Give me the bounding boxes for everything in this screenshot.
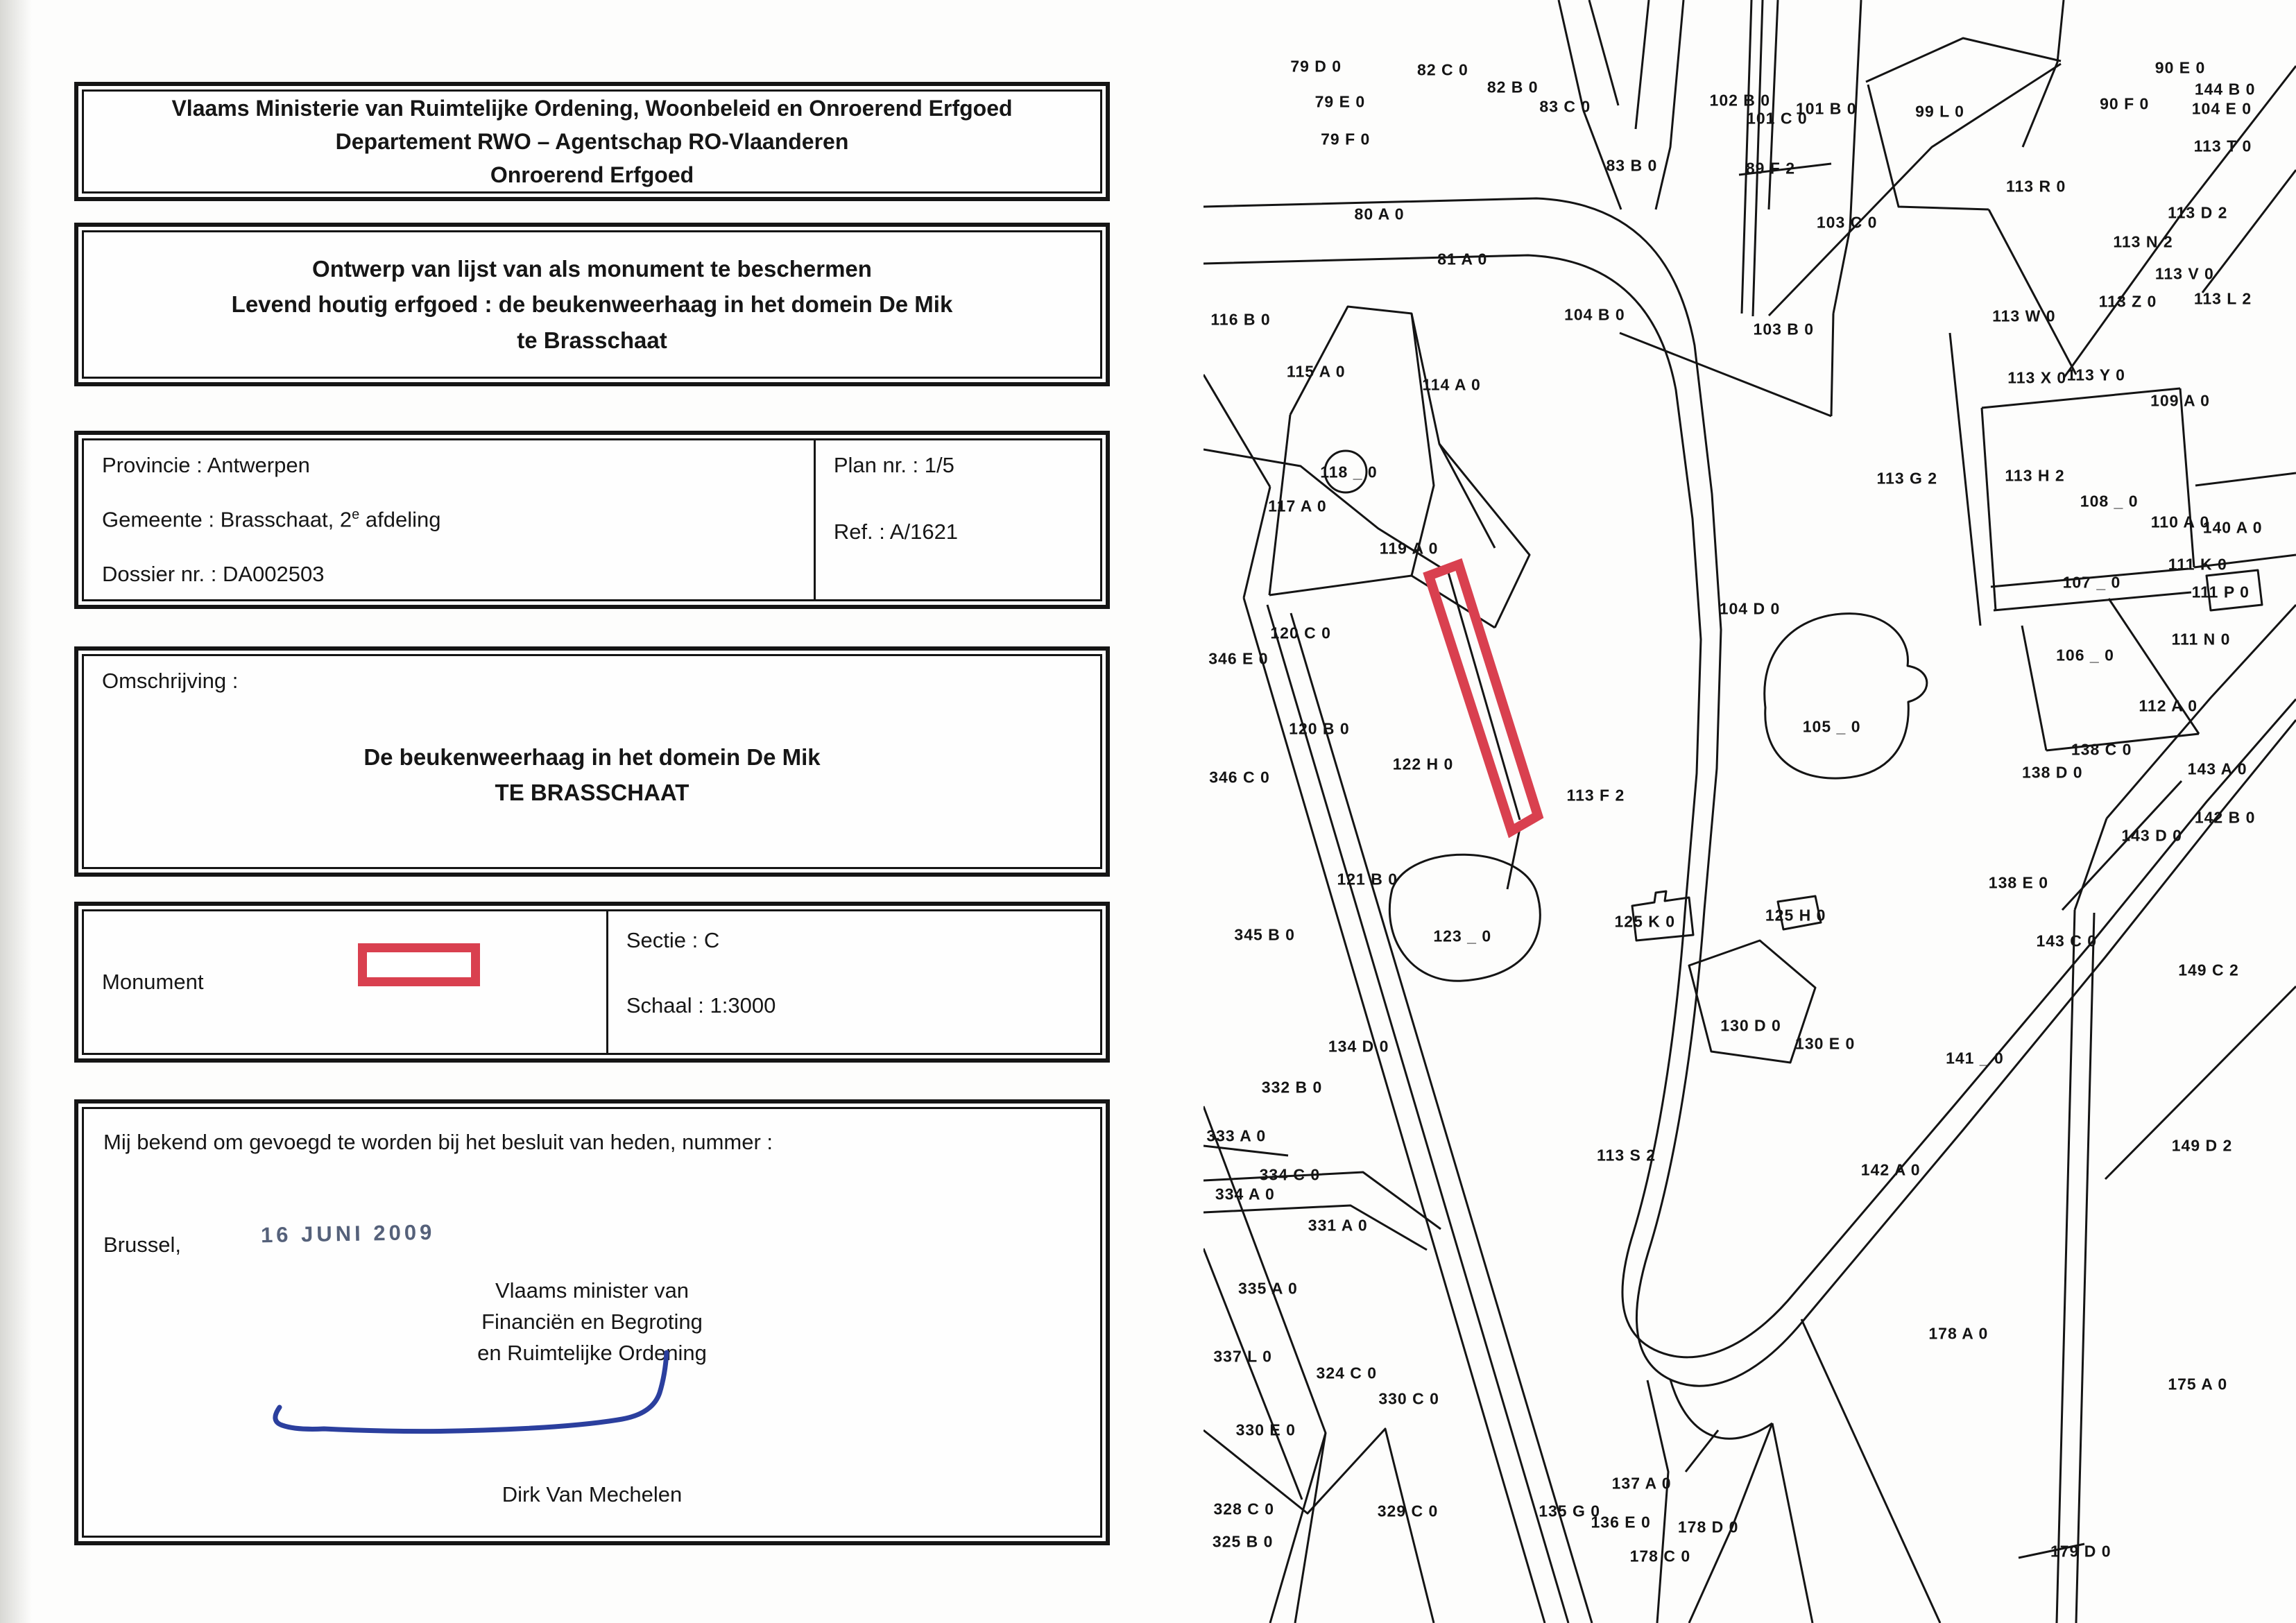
parcel-label: 99 L 0 xyxy=(1915,103,1964,121)
parcel-label: 113 N 2 xyxy=(2113,232,2173,251)
parcel-label: 113 W 0 xyxy=(1992,307,2055,326)
title-line-3: te Brasschaat xyxy=(517,323,667,358)
title-line-1: Ontwerp van lijst van als monument te be… xyxy=(312,251,872,286)
parcel-label: 334 A 0 xyxy=(1215,1185,1275,1204)
parcel-label: 111 P 0 xyxy=(2192,583,2250,602)
parcel-label: 141 _ 0 xyxy=(1946,1049,2004,1067)
parcel-label: 333 A 0 xyxy=(1206,1127,1266,1146)
parcel-label: 102 B 0 xyxy=(1710,92,1771,110)
ministry-line-2: Departement RWO – Agentschap RO-Vlaander… xyxy=(336,125,849,158)
parcel-label: 143 D 0 xyxy=(2121,827,2182,845)
scanned-document-page: Vlaams Ministerie van Ruimtelijke Ordeni… xyxy=(0,0,2296,1623)
parcel-label: 332 B 0 xyxy=(1262,1078,1323,1097)
parcel-label: 80 A 0 xyxy=(1355,205,1405,223)
monument-label: Monument xyxy=(102,970,203,995)
parcel-label: 125 H 0 xyxy=(1765,906,1826,925)
parcel-label: 328 C 0 xyxy=(1213,1500,1274,1519)
parcel-label: 113 G 2 xyxy=(1877,470,1938,488)
parcel-label: 331 A 0 xyxy=(1308,1216,1368,1235)
parcel-label: 134 D 0 xyxy=(1328,1038,1389,1056)
parcel-label: 103 C 0 xyxy=(1817,213,1878,232)
parcel-label: 137 A 0 xyxy=(1612,1474,1672,1493)
parcel-label: 113 Z 0 xyxy=(2099,293,2157,311)
legend-left-cell: Monument xyxy=(84,911,608,1053)
legend-box: Monument Sectie : C Schaal : 1:3000 xyxy=(74,902,1110,1063)
info-left-cell: Provincie : Antwerpen Gemeente : Brassch… xyxy=(84,440,816,599)
closing-line: Mij bekend om gevoegd te worden bij het … xyxy=(103,1130,773,1155)
ref-line: Ref. : A/1621 xyxy=(834,519,1082,544)
cadastral-map: 79 D 082 C 082 B 079 E 083 C 0102 B 0101… xyxy=(1203,0,2296,1623)
parcel-label: 104 D 0 xyxy=(1720,599,1781,618)
parcel-label: 115 A 0 xyxy=(1287,362,1346,381)
plan-line: Plan nr. : 1/5 xyxy=(834,453,1082,478)
parcel-label: 110 A 0 xyxy=(2151,513,2210,532)
ministry-line-3: Onroerend Erfgoed xyxy=(490,158,694,191)
parcel-label: 114 A 0 xyxy=(1422,375,1481,394)
parcel-label: 111 K 0 xyxy=(2168,556,2227,574)
parcel-label: 138 D 0 xyxy=(2022,763,2083,782)
parcel-label: 79 E 0 xyxy=(1315,93,1366,112)
parcel-label: 346 E 0 xyxy=(1208,650,1268,669)
minister-line-2: Financiën en Begroting xyxy=(84,1307,1100,1338)
parcel-label: 330 C 0 xyxy=(1378,1390,1439,1409)
parcel-label: 112 A 0 xyxy=(2139,696,2198,715)
parcel-label: 79 D 0 xyxy=(1290,57,1342,76)
title-box: Ontwerp van lijst van als monument te be… xyxy=(74,223,1110,386)
parcel-label: 335 A 0 xyxy=(1238,1279,1298,1298)
signatory-name: Dirk Van Mechelen xyxy=(84,1482,1100,1507)
monument-highlight-swatch xyxy=(358,943,480,986)
parcel-label: 81 A 0 xyxy=(1437,250,1487,269)
parcel-label: 113 S 2 xyxy=(1597,1147,1656,1165)
parcel-label: 123 _ 0 xyxy=(1433,927,1491,946)
parcel-label: 111 N 0 xyxy=(2171,630,2230,649)
parcel-label: 329 C 0 xyxy=(1378,1502,1439,1520)
parcel-label: 337 L 0 xyxy=(1213,1348,1272,1366)
parcel-label: 113 X 0 xyxy=(2007,369,2066,388)
highlighted-monument-parcel xyxy=(1429,565,1538,831)
parcel-label: 120 C 0 xyxy=(1270,624,1331,642)
parcel-label: 136 E 0 xyxy=(1591,1513,1650,1531)
parcel-label: 143 A 0 xyxy=(2188,760,2247,779)
parcel-label: 138 E 0 xyxy=(1989,873,2048,892)
closing-city: Brussel, xyxy=(103,1233,181,1257)
parcel-label: 113 D 2 xyxy=(2168,203,2227,222)
parcel-label: 125 K 0 xyxy=(1615,913,1676,931)
parcel-label: 122 H 0 xyxy=(1393,755,1454,774)
parcel-label: 119 A 0 xyxy=(1380,539,1439,558)
parcel-label: 82 C 0 xyxy=(1417,60,1468,79)
title-line-2: Levend houtig erfgoed : de beukenweerhaa… xyxy=(232,286,953,322)
parcel-label: 325 B 0 xyxy=(1213,1533,1274,1552)
closing-box: Mij bekend om gevoegd te worden bij het … xyxy=(74,1099,1110,1545)
ministry-line-1: Vlaams Ministerie van Ruimtelijke Ordeni… xyxy=(171,92,1012,125)
omschrijving-box: Omschrijving : De beukenweerhaag in het … xyxy=(74,646,1110,877)
parcel-label: 105 _ 0 xyxy=(1803,718,1861,737)
parcel-label: 178 C 0 xyxy=(1630,1547,1691,1566)
schaal-line: Schaal : 1:3000 xyxy=(626,993,1082,1018)
parcel-label: 104 B 0 xyxy=(1564,305,1625,324)
parcel-label: 178 A 0 xyxy=(1928,1325,1988,1343)
gemeente-line: Gemeente : Brasschaat, 2e afdeling xyxy=(102,507,796,532)
parcel-label: 149 C 2 xyxy=(2178,961,2239,980)
parcel-label: 138 C 0 xyxy=(2071,741,2132,759)
sectie-line: Sectie : C xyxy=(626,928,1082,953)
parcel-label: 106 _ 0 xyxy=(2056,646,2114,665)
parcel-label: 107 _ 0 xyxy=(2063,574,2121,592)
parcel-label: 324 C 0 xyxy=(1317,1364,1378,1382)
legend-right-cell: Sectie : C Schaal : 1:3000 xyxy=(608,911,1100,1053)
parcel-label: 179 D 0 xyxy=(2050,1543,2111,1561)
omschrijving-line-1: De beukenweerhaag in het domein De Mik xyxy=(84,739,1100,775)
parcel-label: 79 F 0 xyxy=(1321,130,1370,149)
parcel-label: 142 A 0 xyxy=(1861,1161,1921,1180)
parcel-label: 121 B 0 xyxy=(1337,870,1398,889)
parcel-label: 101 B 0 xyxy=(1796,99,1857,118)
parcel-label: 108 _ 0 xyxy=(2080,492,2139,511)
info-right-cell: Plan nr. : 1/5 Ref. : A/1621 xyxy=(816,440,1100,599)
parcel-label: 130 E 0 xyxy=(1795,1034,1855,1053)
parcel-label: 113 H 2 xyxy=(2005,466,2064,485)
parcel-label: 334 C 0 xyxy=(1260,1166,1321,1185)
parcel-label: 117 A 0 xyxy=(1268,497,1327,516)
parcel-label: 113 V 0 xyxy=(2155,265,2214,284)
parcel-label: 113 Y 0 xyxy=(2067,366,2125,384)
dossier-line: Dossier nr. : DA002503 xyxy=(102,562,796,587)
parcel-label: 103 B 0 xyxy=(1754,320,1815,339)
parcel-label: 116 B 0 xyxy=(1210,310,1270,329)
parcel-label: 90 F 0 xyxy=(2100,94,2149,113)
parcel-label: 109 A 0 xyxy=(2150,391,2210,410)
parcel-label: 142 B 0 xyxy=(2195,809,2256,827)
parcel-label: 175 A 0 xyxy=(2168,1375,2227,1394)
ministry-header-box: Vlaams Ministerie van Ruimtelijke Ordeni… xyxy=(74,82,1110,201)
scan-edge-shadow xyxy=(0,0,32,1623)
parcel-label: 345 B 0 xyxy=(1234,925,1295,944)
parcel-label: 118 _ 0 xyxy=(1320,463,1377,481)
parcel-label: 113 L 2 xyxy=(2194,289,2252,308)
parcel-label: 113 T 0 xyxy=(2194,137,2252,155)
parcel-label: 140 A 0 xyxy=(2203,518,2263,537)
parcel-label: 82 B 0 xyxy=(1487,78,1539,97)
parcel-label: 330 E 0 xyxy=(1236,1420,1296,1439)
parcel-label: 144 B 0 xyxy=(2195,80,2256,98)
parcel-label: 83 B 0 xyxy=(1607,156,1658,175)
parcel-label: 149 D 2 xyxy=(2172,1137,2233,1156)
minister-line-1: Vlaams minister van xyxy=(84,1276,1100,1307)
gemeente-prefix: Gemeente : Brasschaat, 2 xyxy=(102,508,352,532)
parcel-label: 113 R 0 xyxy=(2006,178,2066,196)
parcel-label: 130 D 0 xyxy=(1720,1016,1781,1035)
parcel-label: 120 B 0 xyxy=(1289,719,1350,738)
parcel-label: 178 D 0 xyxy=(1678,1518,1739,1536)
parcel-label: 89 F 2 xyxy=(1746,160,1795,178)
parcel-label: 113 F 2 xyxy=(1567,786,1625,805)
parcel-label: 143 C 0 xyxy=(2036,932,2097,951)
omschrijving-label: Omschrijving : xyxy=(102,669,238,694)
gemeente-superscript: e xyxy=(352,507,359,522)
parcel-label: 90 E 0 xyxy=(2155,59,2206,78)
parcel-label: 104 E 0 xyxy=(2192,99,2252,118)
parcel-label: 346 C 0 xyxy=(1209,768,1270,787)
info-box: Provincie : Antwerpen Gemeente : Brassch… xyxy=(74,431,1110,609)
omschrijving-line-2: TE BRASSCHAAT xyxy=(84,775,1100,810)
provincie-line: Provincie : Antwerpen xyxy=(102,453,796,478)
signature-stroke xyxy=(264,1343,694,1441)
gemeente-suffix: afdeling xyxy=(359,508,440,532)
date-stamp: 16 JUNI 2009 xyxy=(261,1220,436,1248)
parcel-label: 83 C 0 xyxy=(1539,98,1591,117)
